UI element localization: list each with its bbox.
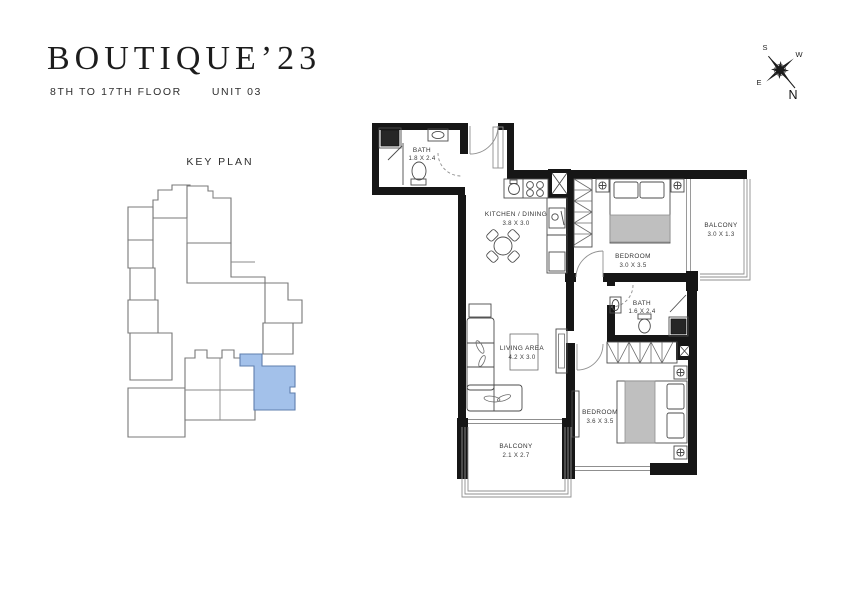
pillow — [614, 182, 638, 198]
toilet-2 — [639, 319, 651, 333]
sink-1 — [428, 129, 448, 141]
kitchen-sink — [509, 184, 520, 195]
room-label-living: LIVING AREA — [500, 345, 545, 352]
brand-logo: BOUTIQUE’23 — [47, 40, 321, 78]
room-label-balcony1: BALCONY — [704, 222, 738, 229]
room-label-kitchen: KITCHEN / DINING — [485, 211, 547, 218]
unit-label: UNIT 03 — [212, 86, 262, 98]
compass-rose: S W E N — [742, 25, 830, 110]
pillow — [667, 413, 684, 438]
sofa-chaise — [467, 385, 522, 411]
shaft-box-kitchen — [548, 169, 571, 198]
room-dims-bath2: 1.6 X 2.4 — [628, 308, 655, 315]
stove-burner — [527, 182, 534, 189]
bath2-door-arc — [611, 285, 633, 307]
toilet-1 — [412, 162, 426, 180]
room-dims-bedroom2: 3.6 X 3.5 — [586, 418, 613, 425]
dining-table — [476, 219, 530, 273]
plant-leaf — [474, 340, 485, 355]
room-dims-kitchen: 3.8 X 3.0 — [502, 220, 529, 227]
wardrobe-2 — [607, 342, 677, 363]
compass-west-label: W — [795, 50, 803, 59]
floor-range-label: 8TH TO 17TH FLOOR — [50, 86, 182, 98]
compass-north-label: N — [788, 88, 797, 102]
key-plan: KEY PLAN — [125, 150, 315, 445]
room-dims-living: 4.2 X 3.0 — [508, 354, 535, 361]
stove-burner — [537, 182, 544, 189]
kitchen-counter-side — [547, 198, 567, 273]
brand-subtitle: 8TH TO 17TH FLOORUNIT 03 — [50, 86, 262, 98]
side-table — [469, 304, 491, 317]
shower-door-2 — [670, 295, 686, 312]
shower-2 — [671, 319, 686, 334]
room-dims-balcony2: 2.1 X 2.7 — [502, 452, 529, 459]
bedroom1-door-arc — [576, 251, 603, 277]
plant-leaf — [497, 393, 512, 402]
bath1-door-arc — [438, 153, 461, 176]
room-label-balcony2: BALCONY — [499, 443, 533, 450]
entry-door-arc — [470, 126, 498, 154]
shower-1 — [381, 130, 399, 146]
key-plan-title: KEY PLAN — [186, 156, 253, 168]
stove-burner — [537, 190, 544, 197]
room-dims-bedroom1: 3.0 X 3.5 — [619, 262, 646, 269]
room-label-bath1: BATH — [413, 147, 431, 154]
room-dims-bath1: 1.8 X 2.4 — [408, 155, 435, 162]
bed-2-blanket — [625, 381, 655, 443]
compass-east-label: E — [756, 78, 761, 87]
pillow — [640, 182, 664, 198]
tv-console-living — [556, 329, 567, 373]
unit-floor-plan: BATH 1.8 X 2.4 KITCHEN / DINING 3.8 X 3.… — [370, 115, 770, 530]
compass-south-label: S — [762, 43, 767, 52]
room-label-bedroom2: BEDROOM — [582, 409, 618, 416]
plant-leaf — [477, 355, 486, 368]
room-dims-balcony1: 3.0 X 1.3 — [707, 231, 734, 238]
wardrobe-1 — [574, 179, 592, 247]
bedroom1-furniture — [574, 179, 684, 247]
bedroom2-door-arc — [577, 344, 603, 370]
room-label-bath2: BATH — [633, 300, 651, 307]
sofa-body — [467, 318, 494, 390]
floorplan-page: BOUTIQUE’23 8TH TO 17TH FLOORUNIT 03 S W… — [0, 0, 841, 595]
shaft-box-bedroom — [676, 342, 693, 360]
rug — [510, 334, 538, 370]
pillow — [667, 384, 684, 409]
room-label-bedroom1: BEDROOM — [615, 253, 651, 260]
stove-burner — [527, 190, 534, 197]
bed-1-blanket — [610, 215, 670, 242]
